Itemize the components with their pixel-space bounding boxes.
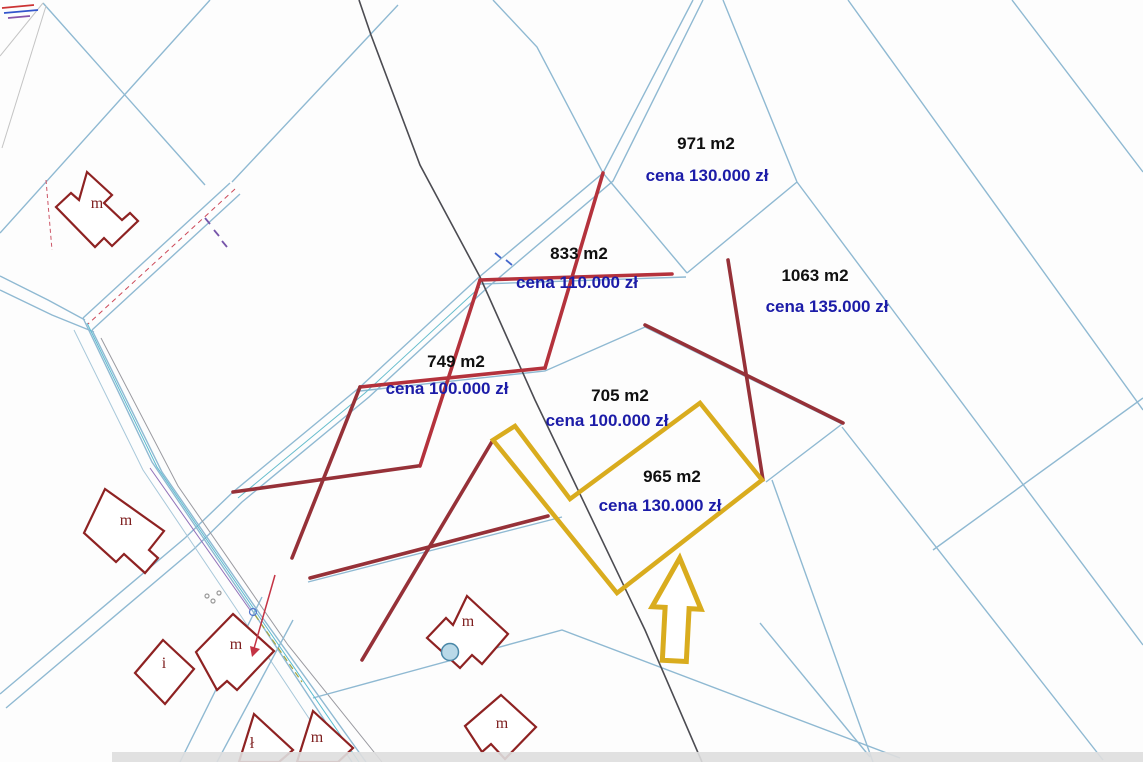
- parcel-price-label: cena 130.000 zł: [599, 496, 722, 515]
- cadastral-map[interactable]: mmimmmłm971 m2cena 130.000 zł833 m2cena …: [0, 0, 1143, 762]
- map-edge-band: [112, 752, 1143, 762]
- house-label: m: [496, 715, 509, 732]
- house-label: i: [162, 655, 167, 672]
- parcel-area-label: 705 m2: [591, 386, 649, 405]
- parcel-area-label: 971 m2: [677, 134, 735, 153]
- parcel-area-label: 749 m2: [427, 352, 485, 371]
- parcel-area-label: 965 m2: [643, 467, 701, 486]
- parcel-price-label: cena 130.000 zł: [646, 166, 769, 185]
- parcel-price-label: cena 100.000 zł: [546, 411, 669, 430]
- parcel-price-label: cena 110.000 zł: [516, 273, 638, 292]
- parcel-price-label: cena 135.000 zł: [766, 297, 889, 316]
- house-label: m: [91, 195, 104, 212]
- pond-circle: [442, 644, 459, 661]
- house-label: ł: [250, 735, 255, 752]
- house-label: m: [230, 636, 243, 653]
- parcel-area-label: 833 m2: [550, 244, 608, 263]
- house-label: m: [311, 729, 324, 746]
- house-label: m: [462, 613, 475, 630]
- parcel-price-label: cena 100.000 zł: [386, 379, 509, 398]
- parcel-area-label: 1063 m2: [781, 266, 848, 285]
- house-label: m: [120, 512, 133, 529]
- map-canvas: mmimmmłm971 m2cena 130.000 zł833 m2cena …: [0, 0, 1143, 762]
